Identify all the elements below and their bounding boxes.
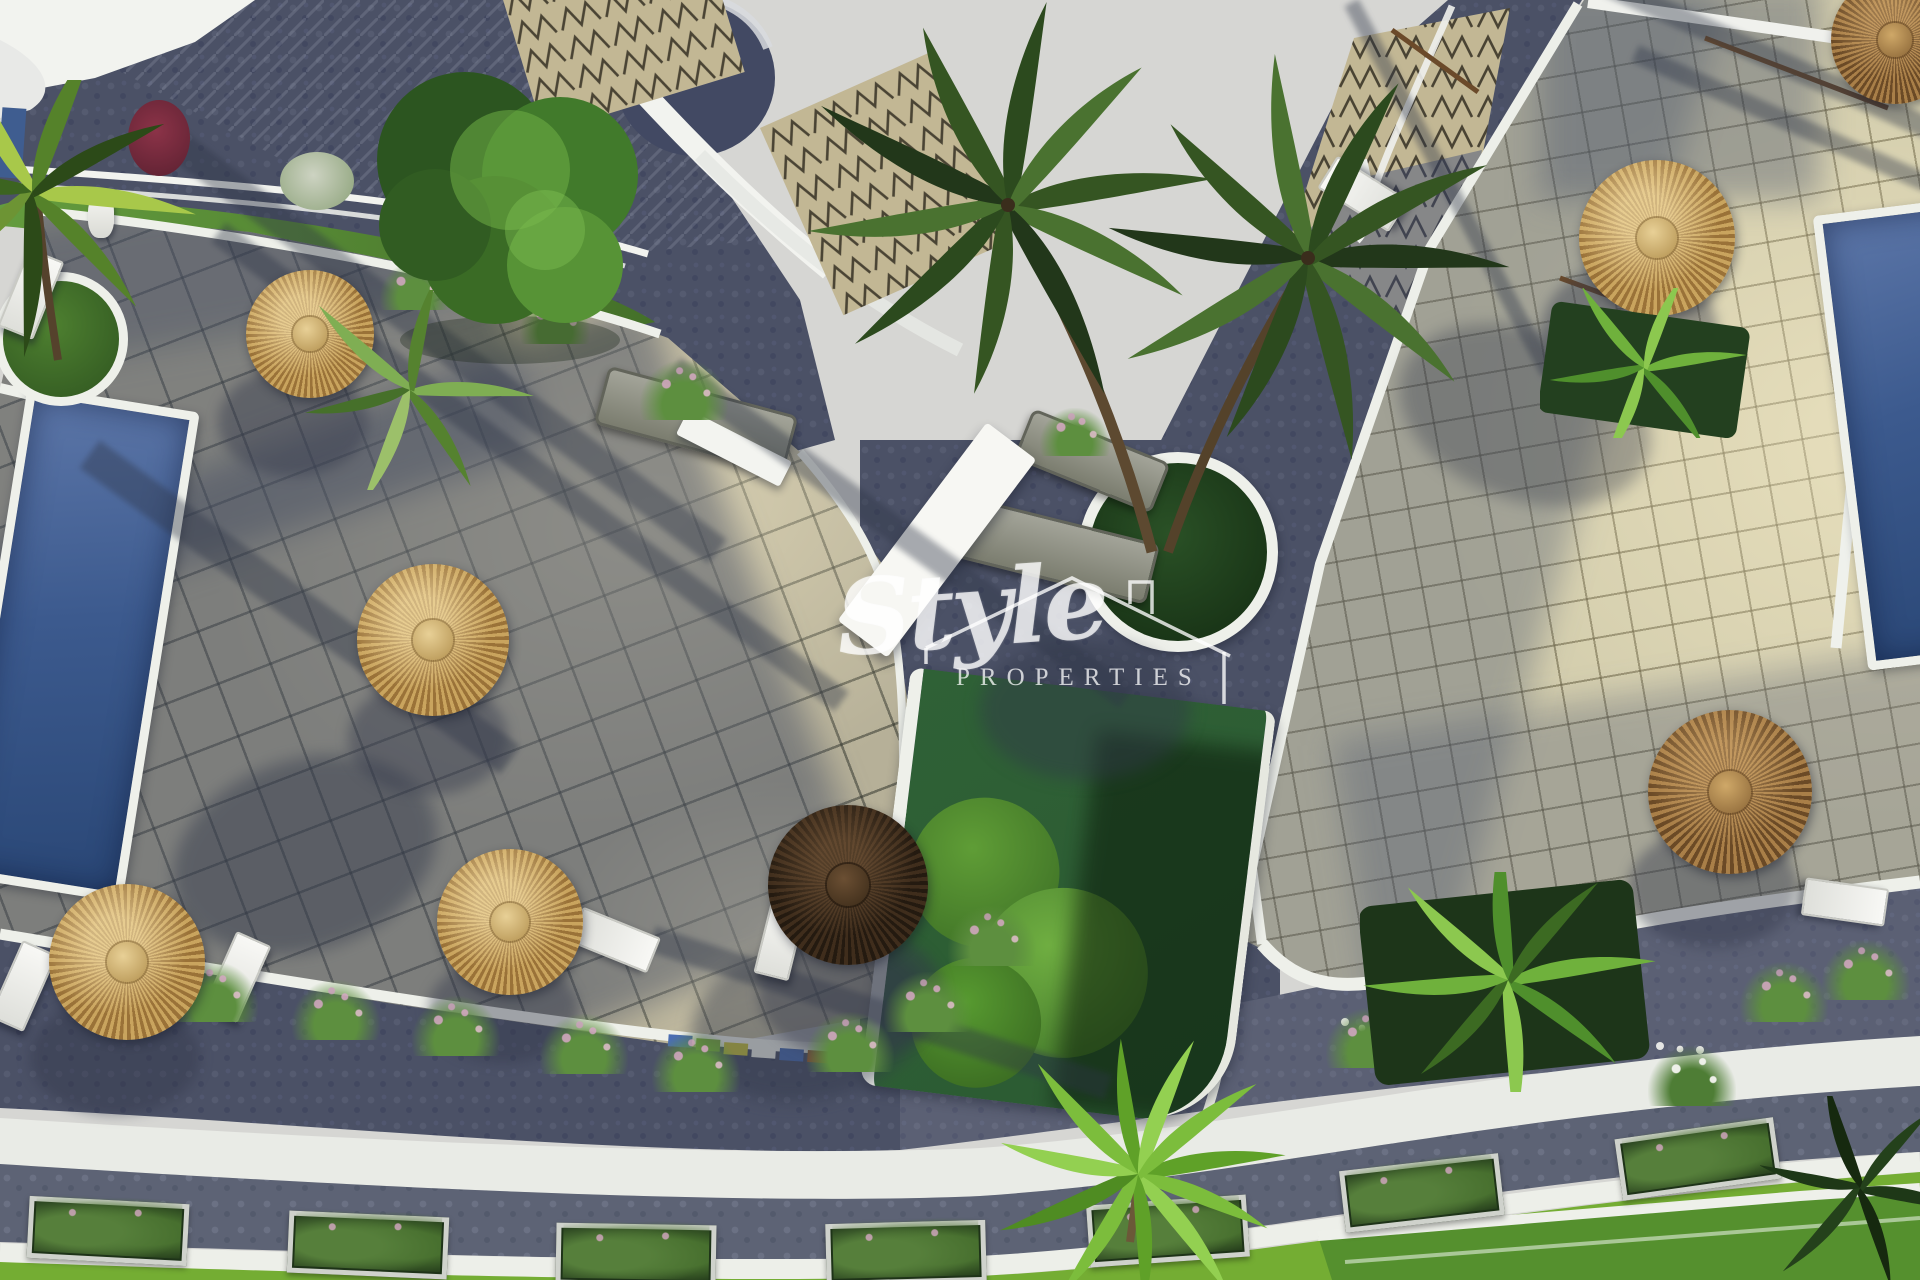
palm-tree bbox=[980, 1032, 1320, 1280]
flower-tuft bbox=[1648, 1046, 1736, 1106]
thatch-parasol bbox=[1648, 710, 1812, 874]
flower-tuft bbox=[1822, 940, 1910, 1000]
flower-tuft bbox=[412, 996, 500, 1056]
thatch-parasol bbox=[357, 564, 509, 716]
palm-tree bbox=[0, 80, 220, 380]
house-roof-outline-icon bbox=[920, 552, 1240, 712]
planter-box bbox=[825, 1220, 987, 1280]
planter-box bbox=[287, 1211, 450, 1280]
aerial-render-scene: Style PROPERTIES bbox=[0, 0, 1920, 1280]
planter-box bbox=[555, 1223, 716, 1280]
white-flower-bush bbox=[280, 152, 354, 210]
flower-tuft bbox=[1740, 962, 1828, 1022]
flower-tuft bbox=[948, 906, 1036, 966]
flower-tuft bbox=[540, 1014, 628, 1074]
fern-planter bbox=[1540, 288, 1750, 438]
flower-tuft bbox=[806, 1012, 894, 1072]
thatch-parasol bbox=[437, 849, 583, 995]
flower-tuft bbox=[292, 980, 380, 1040]
flower-tuft bbox=[884, 972, 972, 1032]
fern-planter bbox=[1360, 872, 1660, 1092]
thatch-parasol bbox=[49, 884, 205, 1040]
fern-planter bbox=[280, 290, 540, 490]
espresso-parasol bbox=[768, 805, 928, 965]
planter-box bbox=[26, 1196, 189, 1266]
flower-tuft bbox=[652, 1032, 740, 1092]
dark-fern bbox=[1760, 1096, 1920, 1280]
